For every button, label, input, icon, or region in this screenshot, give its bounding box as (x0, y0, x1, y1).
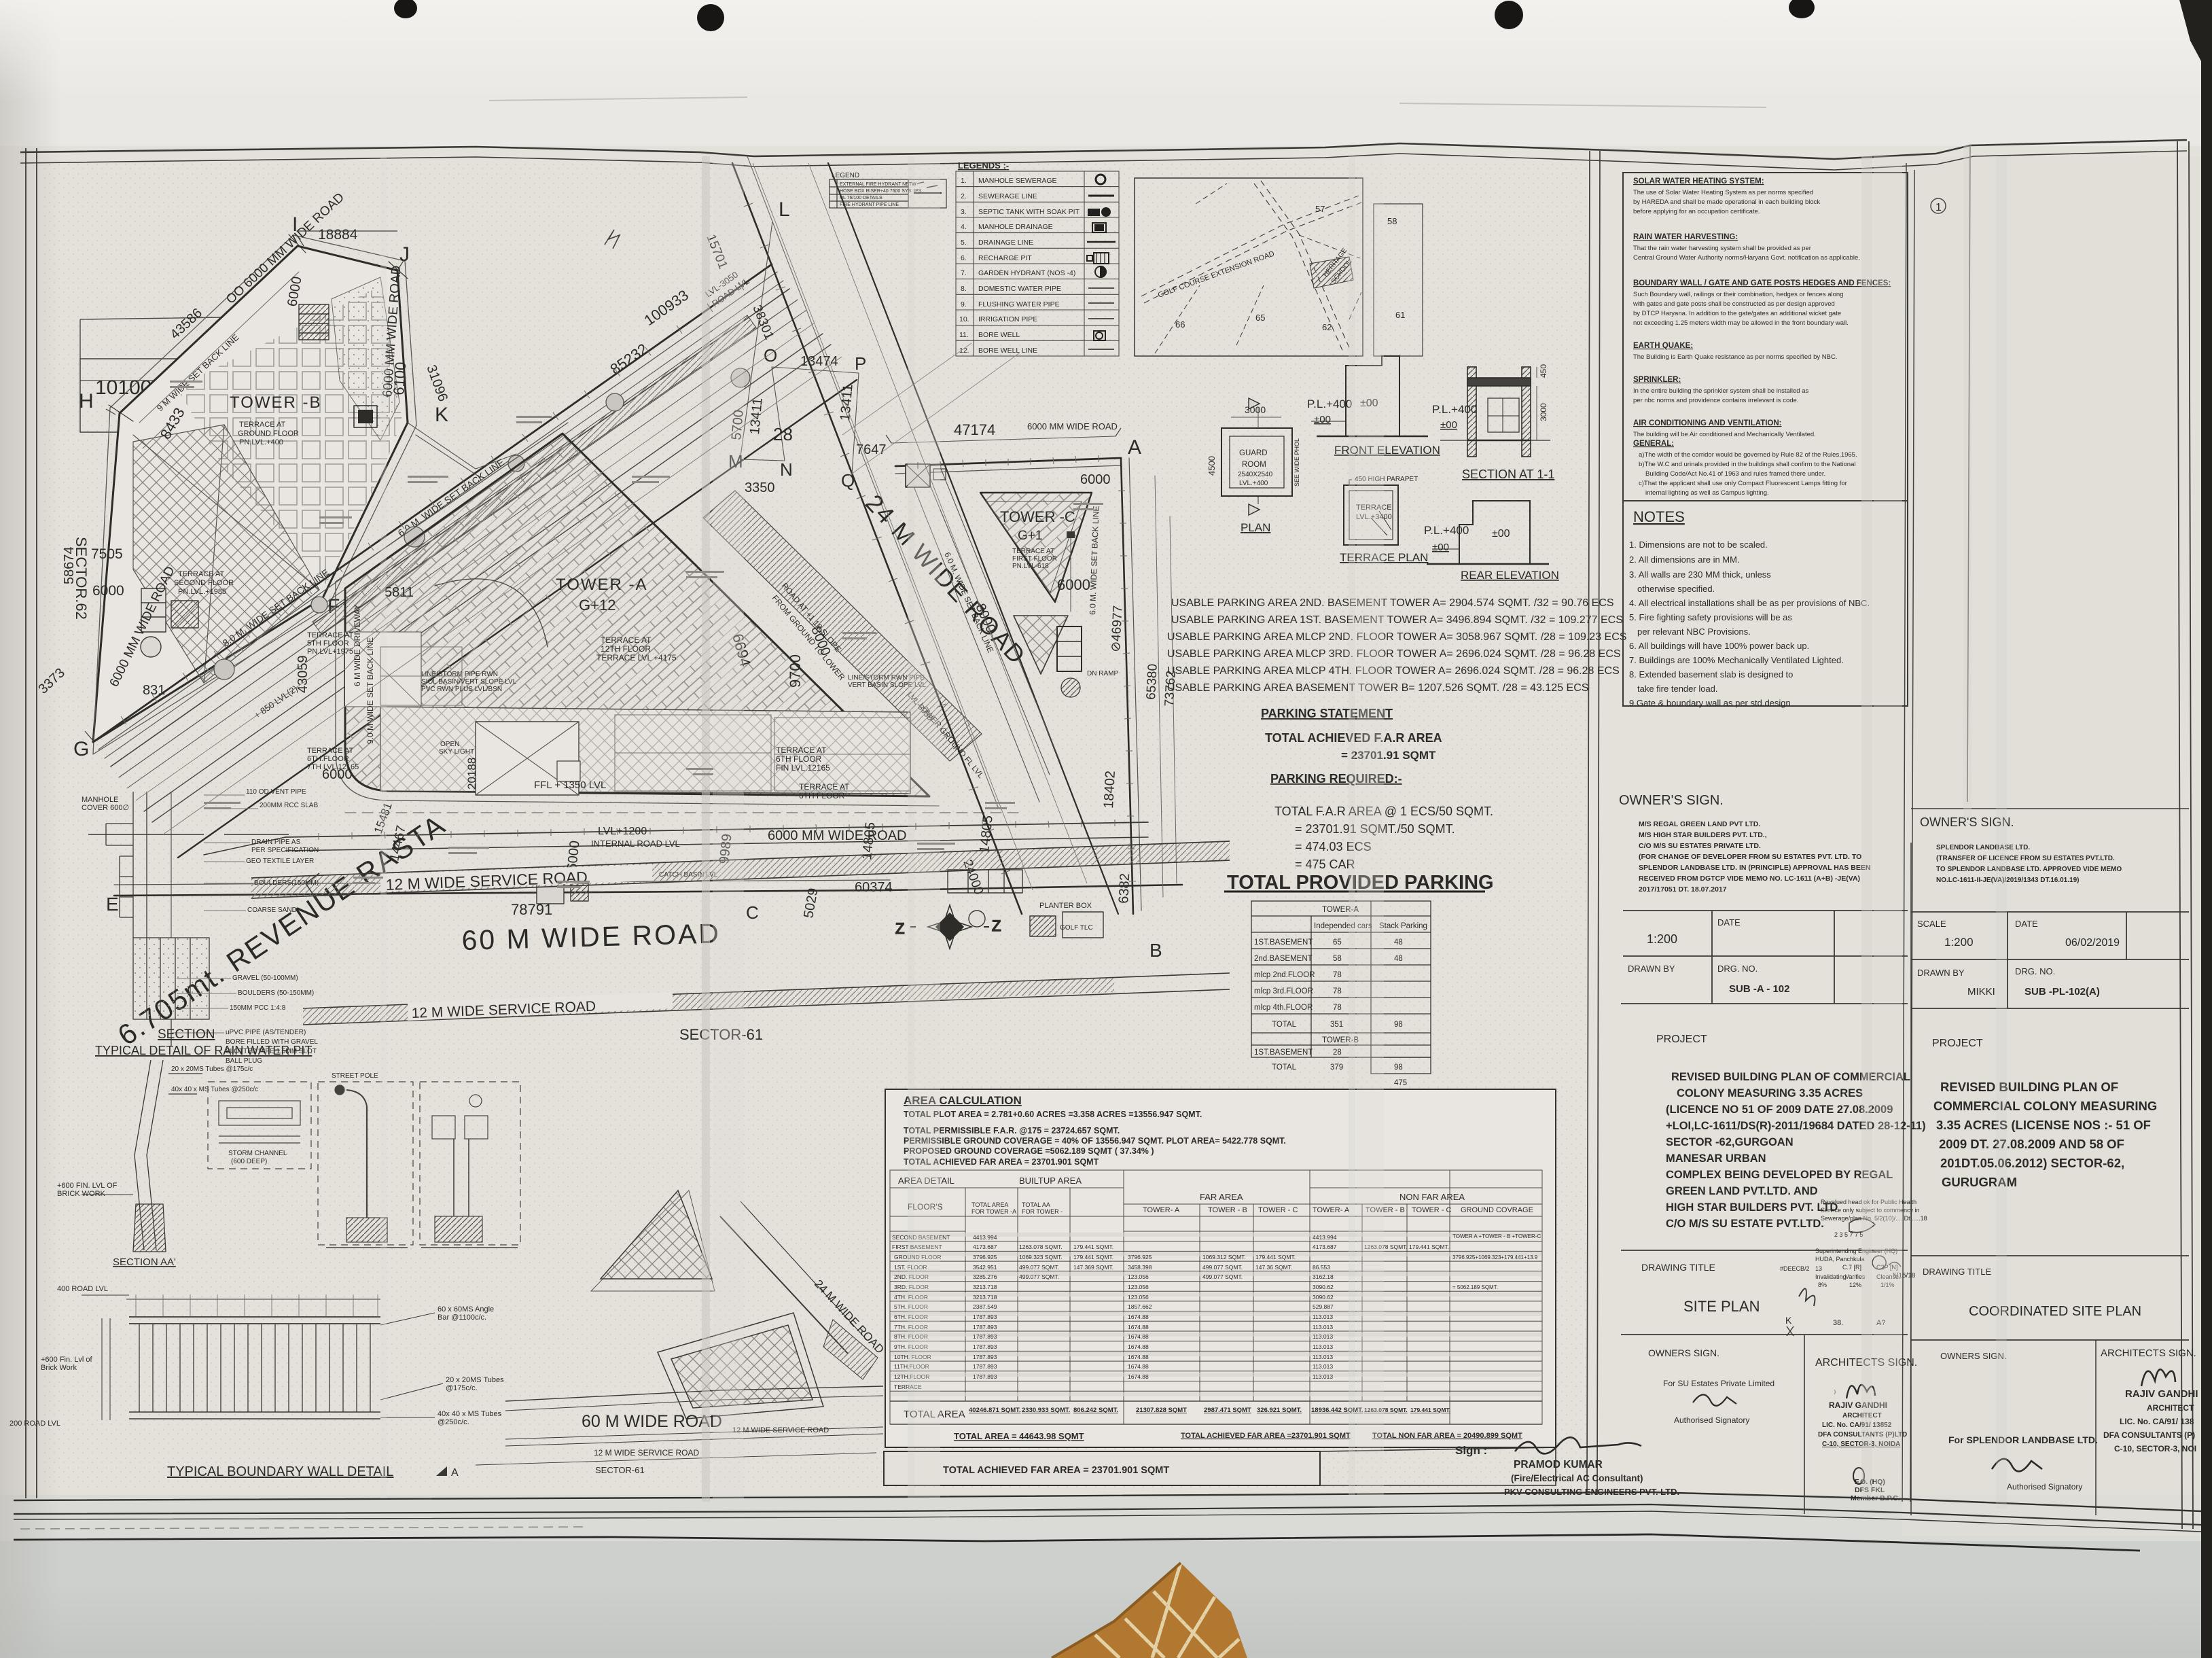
svg-text:179.441 SQMT.: 179.441 SQMT. (1255, 1254, 1296, 1260)
svg-text:O: O (764, 345, 777, 366)
svg-text:2009 DT. 27.08.2009 AND 58 OF: 2009 DT. 27.08.2009 AND 58 OF (1939, 1137, 2124, 1151)
svg-text:SECOND FLOOR: SECOND FLOOR (174, 579, 234, 587)
svg-text:P.L.+400: P.L.+400 (1307, 398, 1352, 410)
svg-text:I: I (292, 213, 298, 236)
svg-text:USABLE PARKING AREA MLCP 3RD.: USABLE PARKING AREA MLCP 3RD. FLOOR TOWE… (1167, 648, 1621, 660)
svg-text:B: B (1149, 940, 1162, 961)
svg-text:G+12: G+12 (579, 597, 616, 614)
svg-text:DATE: DATE (1717, 917, 1741, 928)
svg-text:Bar @1100c/c.: Bar @1100c/c. (438, 1313, 486, 1322)
svg-text:1674.88: 1674.88 (1128, 1313, 1149, 1320)
svg-text:9.: 9. (961, 300, 967, 308)
svg-text:113.013: 113.013 (1313, 1324, 1333, 1330)
svg-text:1: 1 (1935, 202, 1942, 213)
svg-text:OWNER'S SIGN.: OWNER'S SIGN. (1619, 793, 1724, 808)
svg-text:20188: 20188 (465, 758, 478, 790)
svg-text:113.013: 113.013 (1313, 1333, 1333, 1340)
svg-text:K: K (1785, 1315, 1792, 1326)
svg-text:RAJIV GANDHI: RAJIV GANDHI (2125, 1388, 2198, 1400)
svg-text:FAR AREA: FAR AREA (1200, 1192, 1243, 1202)
svg-text:A: A (451, 1467, 459, 1479)
svg-text:ARCHITECTS SIGN.: ARCHITECTS SIGN. (2101, 1347, 2196, 1359)
svg-text:SITE PLAN: SITE PLAN (1683, 1298, 1760, 1315)
svg-text:b)The W.C and urinals provided: b)The W.C and urinals provided in the bu… (1639, 461, 1855, 468)
svg-text:18402: 18402 (1101, 771, 1118, 809)
svg-text:with gates and gate posts shal: with gates and gate posts shall be const… (1633, 300, 1835, 308)
svg-text:40246.871 SQMT.: 40246.871 SQMT. (969, 1407, 1021, 1414)
svg-text:OWNERS SIGN.: OWNERS SIGN. (1648, 1347, 1719, 1358)
svg-text:BRICK WORK: BRICK WORK (57, 1190, 106, 1198)
svg-text:GENERAL:: GENERAL: (1633, 440, 1674, 448)
svg-text:6000 MM WIDE ROAD: 6000 MM WIDE ROAD (768, 828, 906, 843)
svg-text:40x 40 x MS Tubes @250c/c: 40x 40 x MS Tubes @250c/c (171, 1086, 258, 1093)
svg-text:65: 65 (1333, 938, 1342, 947)
svg-text:12TH FLOOR: 12TH FLOOR (601, 644, 651, 654)
svg-text:= 23701.91 SQMT: = 23701.91 SQMT (1341, 749, 1436, 762)
svg-text:4.: 4. (961, 223, 967, 231)
svg-text:TOWER- A: TOWER- A (1313, 1206, 1350, 1214)
svg-text:7.: 7. (961, 269, 967, 277)
svg-text:Z: Z (992, 917, 1001, 934)
svg-text:78: 78 (1333, 987, 1342, 995)
svg-text:4. All electrical installation: 4. All electrical installations shall be… (1629, 598, 1870, 608)
svg-text:8. Extended basement slab is d: 8. Extended basement slab is designed to (1629, 669, 1793, 680)
svg-text:C-10, SECTOR-3, NOI: C-10, SECTOR-3, NOI (2114, 1444, 2196, 1453)
svg-text:1:200: 1:200 (1647, 932, 1677, 946)
svg-text:3000: 3000 (1539, 403, 1548, 421)
svg-text:REAR ELEVATION: REAR ELEVATION (1461, 569, 1559, 582)
svg-text:For SPLENDOR LANDBASE LTD.: For SPLENDOR LANDBASE LTD. (1948, 1434, 2098, 1445)
svg-text:18884: 18884 (318, 227, 358, 243)
svg-text:TYPICAL BOUNDARY WALL DETAIL: TYPICAL BOUNDARY WALL DETAIL (167, 1464, 393, 1479)
svg-text:TERRACE AT: TERRACE AT (799, 782, 850, 792)
svg-text:mlcp 2nd.FLOOR: mlcp 2nd.FLOOR (1254, 971, 1315, 979)
svg-text:±00: ±00 (1314, 414, 1331, 425)
svg-text:PLAN: PLAN (1241, 521, 1270, 534)
svg-text:TERRACE AT: TERRACE AT (178, 570, 225, 578)
svg-text:179.441 SQMT.: 179.441 SQMT. (1073, 1243, 1113, 1250)
svg-text:62: 62 (1322, 322, 1332, 332)
svg-text:K: K (435, 404, 448, 426)
svg-text:LEGENDS :-: LEGENDS :- (958, 160, 1009, 171)
svg-text:SUB -PL-102(A): SUB -PL-102(A) (2024, 986, 2100, 998)
svg-text:DRAINAGE LINE: DRAINAGE LINE (978, 239, 1033, 247)
svg-text:OPEN: OPEN (440, 741, 459, 748)
svg-text:1674.88: 1674.88 (1128, 1343, 1149, 1350)
svg-text:FOR TOWER -A: FOR TOWER -A (971, 1208, 1016, 1215)
svg-text:SPRINKLER:: SPRINKLER: (1633, 376, 1681, 384)
svg-text:2387.549: 2387.549 (973, 1303, 997, 1310)
svg-text:ARCHITECT: ARCHITECT (2147, 1403, 2194, 1413)
svg-text:DN RAMP: DN RAMP (1087, 670, 1118, 677)
svg-text:38.: 38. (1833, 1319, 1843, 1327)
svg-text:USABLE PARKING AREA 1ST. BASEM: USABLE PARKING AREA 1ST. BASEMENT TOWER … (1171, 614, 1623, 626)
svg-text:The Building is Earth Quake re: The Building is Earth Quake resistance a… (1633, 353, 1837, 361)
svg-text:SKY LIGHT: SKY LIGHT (439, 748, 474, 756)
svg-text:1674.88: 1674.88 (1128, 1354, 1149, 1360)
svg-text:GROUND FLOOR: GROUND FLOOR (238, 429, 299, 438)
svg-text:TERRACE AT: TERRACE AT (776, 745, 827, 755)
svg-text:4173.687: 4173.687 (973, 1243, 997, 1250)
svg-text:4173.687: 4173.687 (1313, 1243, 1337, 1250)
svg-text:COMPLEX BEING DEVELOPED BY REG: COMPLEX BEING DEVELOPED BY REGAL (1666, 1169, 1893, 1181)
svg-text:20 x 20MS Tubes @175c/c: 20 x 20MS Tubes @175c/c (171, 1065, 253, 1073)
svg-text:RAIN WATER HARVESTING:: RAIN WATER HARVESTING: (1633, 233, 1738, 241)
svg-text:6.: 6. (961, 254, 967, 262)
svg-text:COLONY MEASURING 3.35 ACRES: COLONY MEASURING 3.35 ACRES (1677, 1087, 1863, 1099)
svg-text:2330.933 SQMT.: 2330.933 SQMT. (1022, 1407, 1070, 1414)
svg-text:TOTAL AREA = 44643.98 SQMT: TOTAL AREA = 44643.98 SQMT (954, 1431, 1084, 1441)
svg-text:201DT.05.06.2012) SECTOR-62,: 201DT.05.06.2012) SECTOR-62, (1940, 1156, 2124, 1170)
svg-text:EARTH QUAKE:: EARTH QUAKE: (1633, 342, 1693, 350)
svg-text:TYPICAL DETAIL OF RAIN WATER P: TYPICAL DETAIL OF RAIN WATER PIT (95, 1044, 312, 1057)
svg-text:DRAWING TITLE: DRAWING TITLE (1923, 1267, 1991, 1277)
svg-text:PN.LVL.+1985: PN.LVL.+1985 (178, 588, 226, 596)
svg-text:TO SPLENDOR LANDBASE LTD. APPR: TO SPLENDOR LANDBASE LTD. APPROVED VIDE … (1936, 866, 2122, 873)
svg-text:GUARD: GUARD (1239, 449, 1268, 457)
svg-text:GROUND COVRAGE: GROUND COVRAGE (1461, 1206, 1533, 1214)
svg-text:PN.LVL.+400: PN.LVL.+400 (239, 438, 283, 446)
svg-text:SPLENDOR LANDBASE LTD.: SPLENDOR LANDBASE LTD. (1936, 844, 2030, 851)
svg-text:+600 Fin. Lvl of: +600 Fin. Lvl of (41, 1356, 92, 1364)
svg-text:Authorised Signatory: Authorised Signatory (1674, 1415, 1749, 1425)
svg-text:TOWER - C: TOWER - C (1412, 1206, 1452, 1214)
svg-text:GARDEN HYDRANT (NOS -4): GARDEN HYDRANT (NOS -4) (978, 269, 1075, 277)
svg-text:⊘46977: ⊘46977 (1109, 605, 1126, 652)
svg-text:A: A (1128, 436, 1141, 459)
svg-text:RECEIVED FROM DGTCP VIDE MEMO: RECEIVED FROM DGTCP VIDE MEMO NO. LC-161… (1639, 875, 1860, 883)
svg-text:1787.893: 1787.893 (973, 1354, 997, 1360)
svg-text:475: 475 (1394, 1079, 1407, 1087)
svg-text:NL 76/100 DETAILS: NL 76/100 DETAILS (840, 196, 882, 200)
svg-text:1. Dimensions are not to be sc: 1. Dimensions are not to be scaled. (1629, 540, 1768, 550)
svg-text:499.077 SQMT.: 499.077 SQMT. (1202, 1264, 1243, 1271)
svg-text:113.013: 113.013 (1313, 1373, 1333, 1380)
svg-text:1787.893: 1787.893 (973, 1333, 997, 1340)
svg-text:C/O M/S SU ESTATE PVT.LTD.: C/O M/S SU ESTATE PVT.LTD. (1666, 1218, 1824, 1230)
svg-text:150MM PCC 1:4:8: 150MM PCC 1:4:8 (230, 1004, 286, 1012)
svg-text:65: 65 (1255, 313, 1265, 323)
svg-text:TERRACE AT: TERRACE AT (601, 635, 652, 645)
svg-text:351: 351 (1330, 1021, 1343, 1029)
svg-text:5TH FLOOR: 5TH FLOOR (307, 639, 349, 648)
svg-text:13: 13 (1815, 1265, 1822, 1272)
svg-text:3.: 3. (961, 208, 967, 216)
svg-text:7647: 7647 (856, 442, 887, 457)
svg-text:TOWER -C: TOWER -C (1000, 508, 1075, 525)
svg-text:NO.LC-1611-II-JE(VA)/2019/1343: NO.LC-1611-II-JE(VA)/2019/1343 DT.16.01.… (1936, 877, 2079, 884)
svg-text:±00: ±00 (1492, 528, 1510, 540)
svg-text:1674.88: 1674.88 (1128, 1373, 1149, 1380)
svg-text:113.013: 113.013 (1313, 1354, 1333, 1360)
svg-text:13411: 13411 (747, 398, 766, 436)
svg-text:L: L (779, 198, 790, 221)
svg-text:by DTCP Haryana. In addition t: by DTCP Haryana. In addition to the gate… (1633, 310, 1841, 317)
svg-text:450: 450 (1539, 364, 1548, 378)
svg-text:66: 66 (1175, 319, 1185, 330)
svg-text:C.7 [R]: C.7 [R] (1842, 1264, 1861, 1271)
svg-text:DATE: DATE (2015, 919, 2038, 929)
svg-text:20 x 20MS Tubes: 20 x 20MS Tubes (446, 1376, 504, 1384)
svg-text:The use of Solar Water Heating: The use of Solar Water Heating System as… (1633, 189, 1813, 196)
svg-text:5.: 5. (961, 239, 967, 247)
svg-text:BORE WELL: BORE WELL (978, 331, 1020, 339)
svg-text:2987.471 SQMT: 2987.471 SQMT (1204, 1407, 1251, 1414)
svg-text:±00: ±00 (1440, 419, 1457, 431)
svg-text:6TH FLOOR: 6TH FLOOR (799, 791, 845, 800)
svg-text:(LICENCE NO 51 OF 2009 DATE 27: (LICENCE NO 51 OF 2009 DATE 27.08.2009 (1666, 1104, 1893, 1116)
svg-text:6000: 6000 (322, 767, 353, 782)
svg-text:326.921 SQMT.: 326.921 SQMT. (1257, 1407, 1302, 1414)
svg-text:8.: 8. (961, 285, 967, 293)
svg-text:2017/17051 DT. 18.07.2017: 2017/17051 DT. 18.07.2017 (1639, 885, 1727, 894)
svg-text:per relevant NBC Provisions.: per relevant NBC Provisions. (1637, 627, 1751, 637)
svg-text:3162.18: 3162.18 (1313, 1273, 1334, 1280)
svg-text:Authorised Signatory: Authorised Signatory (2007, 1482, 2082, 1492)
svg-text:2. All dimensions are in MM.: 2. All dimensions are in MM. (1629, 554, 1740, 565)
svg-text:P.L.+400: P.L.+400 (1424, 524, 1469, 537)
svg-text:47174: 47174 (954, 421, 995, 438)
svg-text:48: 48 (1394, 955, 1403, 963)
svg-text:That the rain water harvesting: That the rain water harvesting system sh… (1633, 245, 1811, 252)
svg-text:SIOL BASIN/VERT SLOPE LVL: SIOL BASIN/VERT SLOPE LVL (421, 678, 517, 686)
svg-text:6000: 6000 (92, 583, 124, 599)
svg-text:2nd.BASEMENT: 2nd.BASEMENT (1254, 955, 1313, 963)
svg-text:BORE WELL LINE: BORE WELL LINE (978, 347, 1037, 355)
svg-text:60 x 60MS Angle: 60 x 60MS Angle (438, 1305, 494, 1313)
svg-text:1069.312 SQMT.: 1069.312 SQMT. (1202, 1254, 1246, 1260)
svg-text:NON FAR AREA: NON FAR AREA (1399, 1192, 1465, 1202)
svg-text:1674.88: 1674.88 (1128, 1363, 1149, 1370)
svg-text:not exceeding 1.25 meters widt: not exceeding 1.25 meters width may be a… (1633, 319, 1849, 327)
svg-text:Building Code/Act No.41 of 196: Building Code/Act No.41 of 1963 and rule… (1645, 470, 1825, 478)
svg-text:LIC. No. CA/91/ 138: LIC. No. CA/91/ 138 (2120, 1417, 2194, 1426)
svg-text:(Fire/Electrical AC Consul: (Fire/Electrical AC Consultant) (1511, 1473, 1643, 1483)
svg-text:TOTAL: TOTAL (1272, 1063, 1297, 1072)
svg-text:HUDA, Panchkula: HUDA, Panchkula (1815, 1256, 1865, 1263)
svg-text:6100: 6100 (390, 361, 409, 396)
svg-text:}: } (1834, 1390, 1836, 1394)
svg-text:G+1: G+1 (1018, 529, 1042, 543)
svg-text:(FOR CHANGE OF DEVELOPER FROM: (FOR CHANGE OF DEVELOPER FROM SU ESTATES… (1639, 853, 1861, 861)
svg-text:40x 40 x MS Tubes: 40x 40 x MS Tubes (438, 1410, 502, 1418)
svg-text:9.Gate & boundary wall as per: 9.Gate & boundary wall as per std.design (1629, 698, 1791, 708)
svg-text:12 M WIDE SERVICE ROAD: 12 M WIDE SERVICE ROAD (594, 1448, 699, 1458)
svg-text:3. All walls are 230 MM thick,: 3. All walls are 230 MM thick, unless (1629, 569, 1771, 580)
svg-text:123.056: 123.056 (1128, 1284, 1149, 1290)
svg-text:N: N (780, 459, 793, 480)
svg-text:@250c/c.: @250c/c. (438, 1418, 469, 1426)
svg-text:499.077 SQMT.: 499.077 SQMT. (1019, 1264, 1059, 1271)
svg-text:M/S HIGH STAR BUILDERS PVT. LT: M/S HIGH STAR BUILDERS PVT. LTD., (1639, 831, 1767, 839)
svg-text:DRAIN PIPE AS: DRAIN PIPE AS (251, 839, 301, 846)
svg-text:M/S REGAL GREEN LAND PVT LTD.: M/S REGAL GREEN LAND PVT LTD. (1639, 820, 1760, 828)
svg-text:MANHOLE DRAINAGE: MANHOLE DRAINAGE (978, 223, 1053, 231)
svg-text:GEO TEXTILE LAYER: GEO TEXTILE LAYER (246, 858, 314, 865)
svg-text:86.553: 86.553 (1313, 1264, 1330, 1271)
svg-text:TOWER - B: TOWER - B (1208, 1206, 1247, 1214)
svg-text:TOTAL AA: TOTAL AA (1022, 1201, 1050, 1208)
svg-text:COVER 600∅: COVER 600∅ (82, 804, 129, 812)
svg-text:BALL PLUG: BALL PLUG (226, 1057, 262, 1065)
svg-text:28: 28 (1333, 1048, 1342, 1057)
svg-text:The building will be Air condi: The building will be Air conditioned and… (1633, 431, 1816, 438)
svg-text:SECTION AA': SECTION AA' (113, 1256, 176, 1268)
svg-text:123.056: 123.056 (1128, 1273, 1149, 1280)
svg-text:13474: 13474 (800, 354, 838, 369)
svg-text:3458.398: 3458.398 (1128, 1264, 1152, 1271)
svg-text:NOTES: NOTES (1633, 508, 1685, 525)
svg-text:STORM CHANNEL: STORM CHANNEL (228, 1150, 287, 1157)
svg-text:FIRE HYDRANT PIPE LINE: FIRE HYDRANT PIPE LINE (840, 202, 899, 207)
svg-text:6000: 6000 (1080, 472, 1111, 487)
svg-text:PROPOSED GROUND COVERAGE =5: PROPOSED GROUND COVERAGE =5062.189 SQMT … (904, 1146, 1154, 1156)
svg-text:BOULDERS(150MM): BOULDERS(150MM) (254, 879, 319, 887)
svg-text:COMMERCIAL COLONY MEASURING: COMMERCIAL COLONY MEASURING (1933, 1099, 2157, 1113)
svg-text:REVISED BUILDING PLAN OF: REVISED BUILDING PLAN OF (1940, 1080, 2118, 1094)
svg-text:4500: 4500 (1207, 456, 1217, 476)
svg-text:6. All buildings will have 100: 6. All buildings will have 100% power ba… (1629, 641, 1809, 651)
svg-text:1674.88: 1674.88 (1128, 1333, 1149, 1340)
svg-text:78: 78 (1333, 971, 1342, 979)
svg-text:TOWER -B: TOWER -B (230, 393, 322, 412)
svg-text:98: 98 (1394, 1063, 1403, 1072)
svg-text:MANHOLE SEWERAGE: MANHOLE SEWERAGE (978, 177, 1057, 185)
svg-text:G: G (73, 738, 89, 760)
svg-text:5. Fire fighting safety provis: 5. Fire fighting safety provisions will … (1629, 612, 1792, 622)
svg-text:3796.925+1069.323+179.441+13.9: 3796.925+1069.323+179.441+13.9 (1452, 1254, 1538, 1260)
svg-text:43059: 43059 (296, 655, 310, 693)
svg-text:7505: 7505 (91, 546, 123, 562)
svg-text:TERRACE LVL +4175: TERRACE LVL +4175 (596, 653, 677, 663)
svg-text:3796.925: 3796.925 (973, 1254, 997, 1260)
svg-text:60374: 60374 (855, 880, 893, 895)
svg-text:RECHARGE PIT: RECHARGE PIT (978, 254, 1032, 262)
svg-text:FLUSHING WATER PIPE: FLUSHING WATER PIPE (978, 300, 1060, 308)
svg-text:USABLE PARKING AREA MLCP 4TH.: USABLE PARKING AREA MLCP 4TH. FLOOR TOWE… (1167, 665, 1620, 677)
svg-text:11.: 11. (959, 331, 969, 339)
svg-text:E: E (106, 894, 119, 915)
svg-text:P: P (855, 353, 866, 374)
svg-text:3285.276: 3285.276 (973, 1273, 997, 1280)
svg-text:MANHOLE: MANHOLE (82, 796, 118, 804)
svg-text:6382: 6382 (1116, 873, 1132, 904)
svg-text:TERRACE AT: TERRACE AT (239, 421, 286, 429)
svg-text:499.077 SQMT.: 499.077 SQMT. (1202, 1273, 1243, 1280)
svg-text:3213.718: 3213.718 (973, 1294, 997, 1301)
svg-text:58: 58 (1387, 216, 1397, 226)
svg-text:PROJECT: PROJECT (1656, 1034, 1707, 1045)
svg-text:806.242 SQMT.: 806.242 SQMT. (1073, 1407, 1118, 1414)
svg-text:3350: 3350 (745, 480, 775, 495)
svg-text:SOLAR WATER HEATING SYSTEM:: SOLAR WATER HEATING SYSTEM: (1633, 177, 1764, 186)
svg-text:±00: ±00 (1432, 542, 1449, 553)
svg-text:1263.078 SQMT.: 1263.078 SQMT. (1019, 1243, 1063, 1250)
svg-text:LINE/STORM PIPE RWN: LINE/STORM PIPE RWN (421, 671, 498, 678)
svg-text:06/02/2019: 06/02/2019 (2065, 937, 2120, 949)
svg-text:FFL + 1350 LVL: FFL + 1350 LVL (534, 779, 606, 791)
svg-text:BOUNDARY WALL / GATE AND GATE: BOUNDARY WALL / GATE AND GATE POSTS HEDG… (1633, 279, 1891, 287)
svg-text:TOTAL ACHIEVED FAR AREA =23701: TOTAL ACHIEVED FAR AREA =23701.901 SQMT (1181, 1432, 1351, 1440)
svg-text:DRAWN BY: DRAWN BY (1628, 964, 1675, 974)
svg-text:200MM RCC SLAB: 200MM RCC SLAB (260, 802, 318, 809)
svg-text:48: 48 (1394, 938, 1403, 947)
svg-text:3.35 ACRES (LICENSE NOS :- 51: 3.35 ACRES (LICENSE NOS :- 51 OF (1936, 1118, 2151, 1132)
svg-text:PLANTER BOX: PLANTER BOX (1039, 902, 1092, 910)
svg-text:2540X2540: 2540X2540 (1238, 471, 1273, 478)
svg-text:113.013: 113.013 (1313, 1363, 1333, 1370)
svg-text:DRAWING TITLE: DRAWING TITLE (1641, 1262, 1715, 1273)
svg-text:USABLE PARKING AREA MLCP 2ND.: USABLE PARKING AREA MLCP 2ND. FLOOR TOWE… (1167, 631, 1626, 643)
svg-text:6000: 6000 (1057, 576, 1090, 593)
svg-text:Such Boundary wall, railings o: Such Boundary wall, railings or their co… (1633, 291, 1843, 298)
svg-text:179.441 SQMT.: 179.441 SQMT. (1409, 1243, 1449, 1250)
svg-text:HIGH STAR BUILDERS PVT. LTD: HIGH STAR BUILDERS PVT. LTD (1666, 1201, 1838, 1214)
svg-text:499.077 SQMT.: 499.077 SQMT. (1019, 1273, 1059, 1280)
svg-text:C/O M/S SU ESTATES PRIVATE LTD: C/O M/S SU ESTATES PRIVATE LTD. (1639, 842, 1761, 850)
svg-text:SECTION AT 1-1: SECTION AT 1-1 (1462, 468, 1554, 481)
svg-text:PERMISSIBLE GROUND COVERAGE =: PERMISSIBLE GROUND COVERAGE = 40% OF 135… (904, 1136, 1286, 1146)
svg-text:2.: 2. (961, 192, 967, 200)
svg-text:otherwise specified.: otherwise specified. (1637, 584, 1715, 594)
svg-text:179.441 SQMT.: 179.441 SQMT. (1410, 1407, 1450, 1413)
svg-text:USABLE PARKING AREA 2ND. BASE: USABLE PARKING AREA 2ND. BASEMENT TOWER … (1171, 597, 1614, 609)
svg-text:1069.323 SQMT.: 1069.323 SQMT. (1019, 1254, 1063, 1260)
svg-text:78: 78 (1333, 1004, 1342, 1012)
svg-text:LEGEND: LEGEND (832, 172, 859, 179)
svg-text:4413.994: 4413.994 (973, 1234, 997, 1241)
svg-text:1857.662: 1857.662 (1128, 1303, 1152, 1310)
svg-text:GOLF TLC: GOLF TLC (1060, 924, 1093, 932)
svg-text:LVL.+400: LVL.+400 (1239, 480, 1268, 487)
svg-text:SECTION: SECTION (158, 1027, 215, 1042)
svg-text:12%: 12% (1849, 1282, 1861, 1288)
svg-text:1787.893: 1787.893 (973, 1313, 997, 1320)
svg-text:PN.LVL+1975: PN.LVL+1975 (307, 648, 353, 656)
svg-text:147.369 SQMT.: 147.369 SQMT. (1073, 1264, 1113, 1271)
svg-text:Central Ground Water Authority: Central Ground Water Authority norms/Har… (1633, 254, 1860, 262)
svg-text:TERRACE AT: TERRACE AT (307, 631, 354, 639)
svg-text:3213.718: 3213.718 (973, 1284, 997, 1290)
svg-text:EXTERNAL FIRE HYDRANT NETW: EXTERNAL FIRE HYDRANT NETW (840, 182, 916, 187)
svg-text:PKV CONSULTING ENGINEERS PVT.: PKV CONSULTING ENGINEERS PVT. LTD. (1504, 1487, 1679, 1497)
svg-text:9700: 9700 (787, 654, 804, 688)
svg-text:DRG. NO.: DRG. NO. (1717, 964, 1758, 974)
svg-text:per nbc norms and providence c: per nbc norms and providence contains ir… (1633, 397, 1798, 404)
svg-text:60 M WIDE ROAD: 60 M WIDE ROAD (582, 1412, 722, 1431)
svg-text:SEE WIDE PHOL: SEE WIDE PHOL (1294, 438, 1300, 487)
svg-text:1787.893: 1787.893 (973, 1343, 997, 1350)
svg-text:6 M WIDE DRIVEWAY: 6 M WIDE DRIVEWAY (353, 604, 362, 686)
svg-text:SECTOR-61: SECTOR-61 (595, 1465, 645, 1475)
svg-text:147.36 SQMT.: 147.36 SQMT. (1255, 1264, 1292, 1271)
svg-text:= 475 CAR: = 475 CAR (1295, 858, 1355, 871)
svg-text:Stack Parking: Stack Parking (1379, 922, 1427, 930)
svg-text:TOTAL PLOT AREA = 2.781+0.60: TOTAL PLOT AREA = 2.781+0.60 ACRES =3.35… (904, 1110, 1202, 1119)
svg-text:In the entire building the spr: In the entire building the sprinkler sys… (1633, 387, 1808, 395)
svg-text:TOTAL AREA: TOTAL AREA (971, 1201, 1008, 1208)
svg-text:179.441 SQMT.: 179.441 SQMT. (1073, 1254, 1113, 1260)
svg-text:c)That the applicant shall use: c)That the applicant shall use only Comp… (1639, 480, 1847, 487)
svg-text:C: C (746, 902, 759, 923)
svg-text:TOWER -A: TOWER -A (556, 576, 648, 594)
svg-text:FIRST FLOOR: FIRST FLOOR (1012, 555, 1057, 563)
svg-text:6000 MM WIDE ROAD: 6000 MM WIDE ROAD (1027, 421, 1118, 431)
svg-text:379: 379 (1330, 1063, 1343, 1072)
svg-text:200 ROAD LVL: 200 ROAD LVL (10, 1419, 60, 1428)
svg-text:1ST.BASEMENT: 1ST.BASEMENT (1254, 938, 1313, 947)
svg-text:TERRACE AT: TERRACE AT (1012, 548, 1054, 555)
